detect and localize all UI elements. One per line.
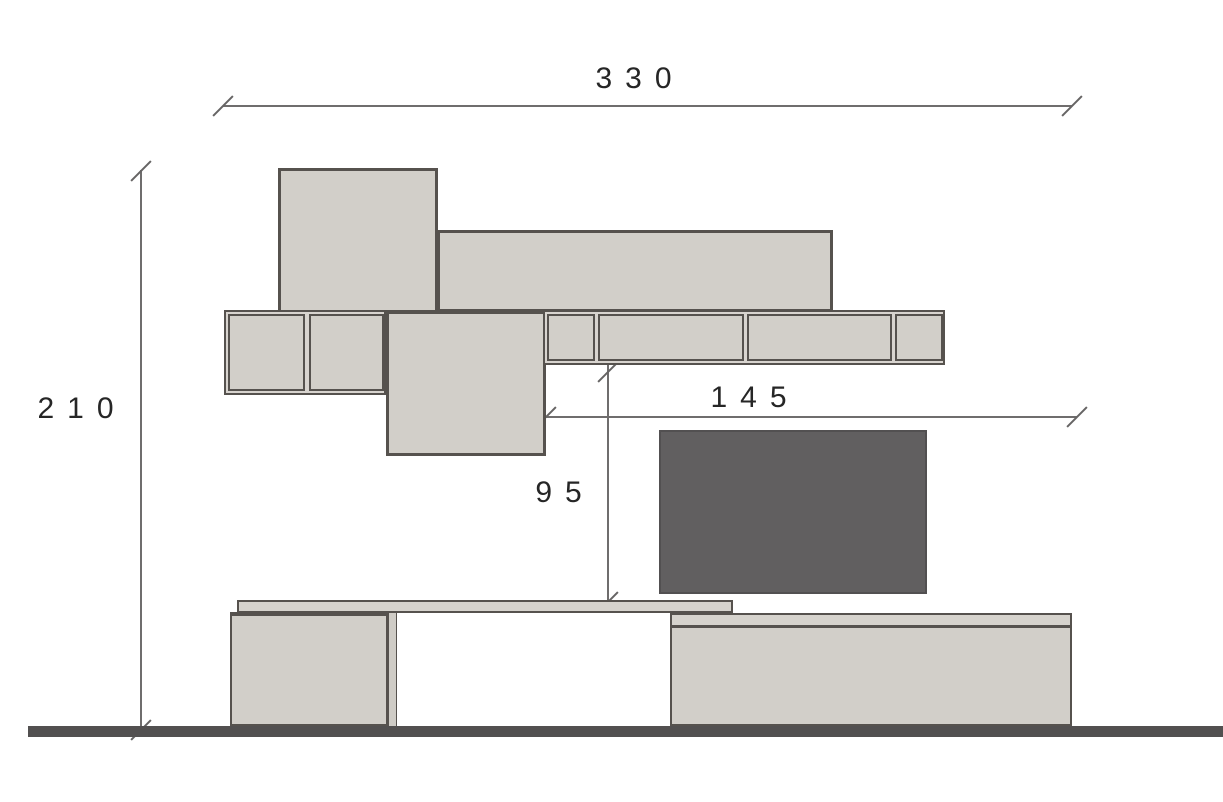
base-cabinet-divider bbox=[388, 612, 397, 733]
drop-cabinet bbox=[386, 311, 546, 456]
floor-line bbox=[28, 726, 1223, 737]
dim-total-width-line bbox=[223, 105, 1072, 107]
shelf-compartment bbox=[895, 314, 943, 361]
base-cabinet-right-lid bbox=[672, 615, 1070, 628]
dim-tv-height-line bbox=[607, 365, 609, 608]
dim-shelf-span-label: 145 bbox=[710, 381, 799, 415]
low-shelf-board bbox=[237, 600, 733, 613]
wall-box-cell bbox=[228, 314, 305, 391]
base-cabinet-left bbox=[230, 612, 388, 726]
dim-total-height-line bbox=[140, 170, 142, 733]
wall-box-cell bbox=[309, 314, 384, 391]
upper-tall-cabinet bbox=[278, 168, 438, 313]
dim-shelf-span-line bbox=[546, 416, 1077, 418]
base-cabinet-right bbox=[670, 613, 1072, 726]
elevation-drawing: 330 210 145 95 bbox=[0, 0, 1223, 802]
dim-tv-height-label: 95 bbox=[535, 476, 594, 510]
wall-shelf-row-right bbox=[543, 310, 945, 365]
tv-screen bbox=[659, 430, 927, 594]
wall-box-group-left bbox=[224, 310, 386, 395]
dim-total-height-label: 210 bbox=[37, 392, 126, 426]
shelf-compartment bbox=[547, 314, 595, 361]
shelf-compartment bbox=[598, 314, 744, 361]
dim-total-width-label: 330 bbox=[595, 62, 684, 96]
shelf-compartment bbox=[747, 314, 892, 361]
upper-long-cabinet bbox=[437, 230, 833, 312]
